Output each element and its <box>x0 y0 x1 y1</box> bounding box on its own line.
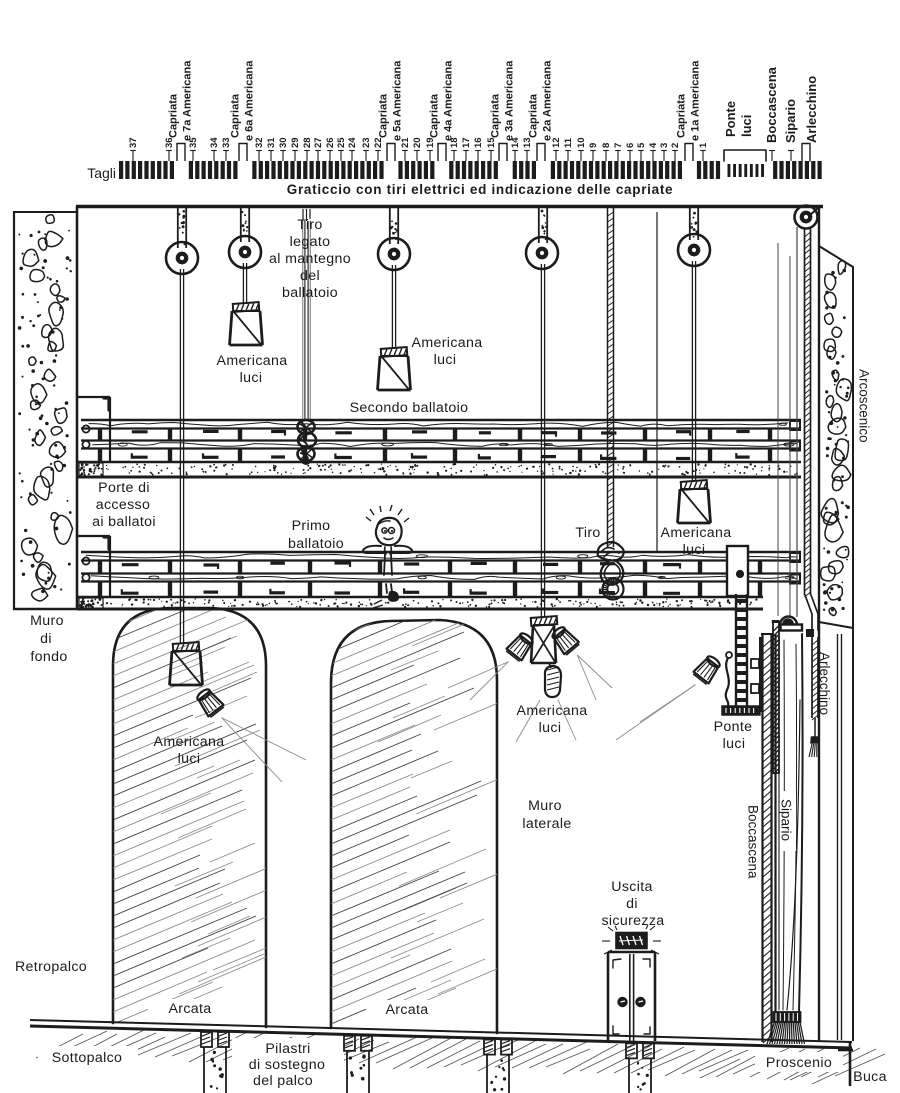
svg-text:Muro: Muro <box>528 798 562 814</box>
svg-text:30: 30 <box>278 137 289 148</box>
svg-text:Capriata: Capriata <box>378 93 390 138</box>
svg-text:23: 23 <box>361 137 372 148</box>
svg-text:Americana: Americana <box>517 703 588 719</box>
svg-text:22: 22 <box>373 137 384 148</box>
svg-text:Sottopalco: Sottopalco <box>52 1050 123 1066</box>
svg-text:11: 11 <box>563 137 574 148</box>
svg-text:37: 37 <box>128 137 139 148</box>
svg-text:Arcata: Arcata <box>168 1001 211 1017</box>
svg-text:Sipario: Sipario <box>783 99 798 143</box>
svg-text:Tiro: Tiro <box>297 217 322 233</box>
svg-text:24: 24 <box>347 137 358 148</box>
svg-text:fondo: fondo <box>30 649 67 665</box>
svg-text:26: 26 <box>325 137 336 148</box>
svg-text:Ponte: Ponte <box>714 719 753 735</box>
svg-text:Americana: Americana <box>412 335 483 351</box>
svg-text:Tiro: Tiro <box>575 525 600 541</box>
svg-text:Capriata: Capriata <box>168 93 180 138</box>
svg-text:e 2a Americana: e 2a Americana <box>542 60 554 141</box>
svg-text:Buca: Buca <box>853 1069 887 1085</box>
svg-text:Tagli: Tagli <box>87 165 116 181</box>
svg-text:luci: luci <box>240 370 263 386</box>
svg-text:8: 8 <box>601 143 612 148</box>
svg-text:luci: luci <box>683 542 706 558</box>
svg-text:Graticcio con tiri elettrici e: Graticcio con tiri elettrici ed indicazi… <box>287 182 673 197</box>
svg-text:Americana: Americana <box>217 353 288 369</box>
svg-text:Arlecchino: Arlecchino <box>804 76 819 143</box>
svg-text:2: 2 <box>670 143 681 148</box>
svg-text:7: 7 <box>613 143 624 148</box>
svg-text:Americana: Americana <box>661 525 732 541</box>
svg-text:laterale: laterale <box>522 816 571 832</box>
svg-text:luci: luci <box>434 352 457 368</box>
svg-text:19: 19 <box>425 137 436 148</box>
svg-text:6: 6 <box>625 143 636 148</box>
svg-text:31: 31 <box>266 137 277 148</box>
svg-text:4: 4 <box>648 142 659 148</box>
svg-text:27: 27 <box>313 137 324 148</box>
svg-text:ballatoio: ballatoio <box>282 285 338 301</box>
svg-text:del: del <box>300 268 320 284</box>
svg-text:di sostegno: di sostegno <box>249 1057 325 1073</box>
svg-text:1: 1 <box>698 142 709 148</box>
svg-text:Proscenio: Proscenio <box>766 1055 832 1071</box>
svg-text:sicurezza: sicurezza <box>601 913 664 929</box>
svg-text:luci: luci <box>178 751 201 767</box>
svg-text:legato: legato <box>290 234 331 250</box>
svg-text:Retropalco: Retropalco <box>15 959 87 975</box>
svg-text:di: di <box>626 896 638 912</box>
svg-text:32: 32 <box>254 137 265 148</box>
svg-text:28: 28 <box>302 137 313 148</box>
svg-text:Pilastri: Pilastri <box>265 1041 310 1057</box>
svg-text:25: 25 <box>336 137 347 148</box>
svg-text:luci: luci <box>739 115 754 137</box>
svg-text:e 5a Americana: e 5a Americana <box>392 60 404 141</box>
svg-text:ai ballatoi: ai ballatoi <box>92 514 156 530</box>
svg-text:Arlecchino: Arlecchino <box>817 652 832 715</box>
svg-text:del palco: del palco <box>253 1073 313 1089</box>
svg-text:luci: luci <box>539 720 562 736</box>
svg-text:Secondo ballatoio: Secondo ballatoio <box>350 400 469 416</box>
svg-text:9: 9 <box>588 143 599 148</box>
svg-text:e 1a Americana: e 1a Americana <box>690 60 702 141</box>
svg-text:di: di <box>40 631 52 647</box>
svg-text:ballatoio: ballatoio <box>288 536 344 552</box>
svg-text:Capriata: Capriata <box>429 93 441 138</box>
svg-text:al mantegno: al mantegno <box>269 251 351 267</box>
svg-text:33: 33 <box>221 137 232 148</box>
svg-text:10: 10 <box>576 137 587 148</box>
svg-text:Capriata: Capriata <box>528 93 540 138</box>
svg-text:Arcata: Arcata <box>385 1002 428 1018</box>
svg-text:Americana: Americana <box>154 734 225 750</box>
svg-text:e 7a Americana: e 7a Americana <box>182 60 194 141</box>
svg-text:Ponte: Ponte <box>723 101 738 137</box>
svg-text:Capriata: Capriata <box>490 93 502 138</box>
svg-text:e 3a Americana: e 3a Americana <box>504 60 516 141</box>
svg-text:13: 13 <box>522 137 533 148</box>
svg-text:36: 36 <box>164 137 175 148</box>
svg-text:34: 34 <box>209 137 220 148</box>
svg-text:luci: luci <box>723 736 746 752</box>
svg-text:Capriata: Capriata <box>676 93 688 138</box>
svg-text:e 6a Americana: e 6a Americana <box>244 60 256 141</box>
svg-text:Boccascena: Boccascena <box>746 805 761 879</box>
svg-text:Capriata: Capriata <box>230 93 242 138</box>
svg-text:17: 17 <box>461 137 472 148</box>
svg-text:20: 20 <box>412 137 423 148</box>
svg-text:29: 29 <box>290 137 301 148</box>
svg-text:e 4a Americana: e 4a Americana <box>443 60 455 141</box>
svg-text:Muro: Muro <box>30 613 64 629</box>
svg-text:Porte di: Porte di <box>98 480 150 496</box>
svg-text:5: 5 <box>636 142 647 148</box>
svg-text:Arcoscenico: Arcoscenico <box>857 369 872 443</box>
svg-text:16: 16 <box>473 137 484 148</box>
svg-text:Primo: Primo <box>292 518 331 534</box>
svg-text:accesso: accesso <box>96 497 151 513</box>
svg-text:3: 3 <box>659 143 670 148</box>
svg-text:Sipario: Sipario <box>779 799 794 841</box>
svg-text:Boccascena: Boccascena <box>764 66 779 143</box>
svg-text:Uscita: Uscita <box>611 879 653 895</box>
